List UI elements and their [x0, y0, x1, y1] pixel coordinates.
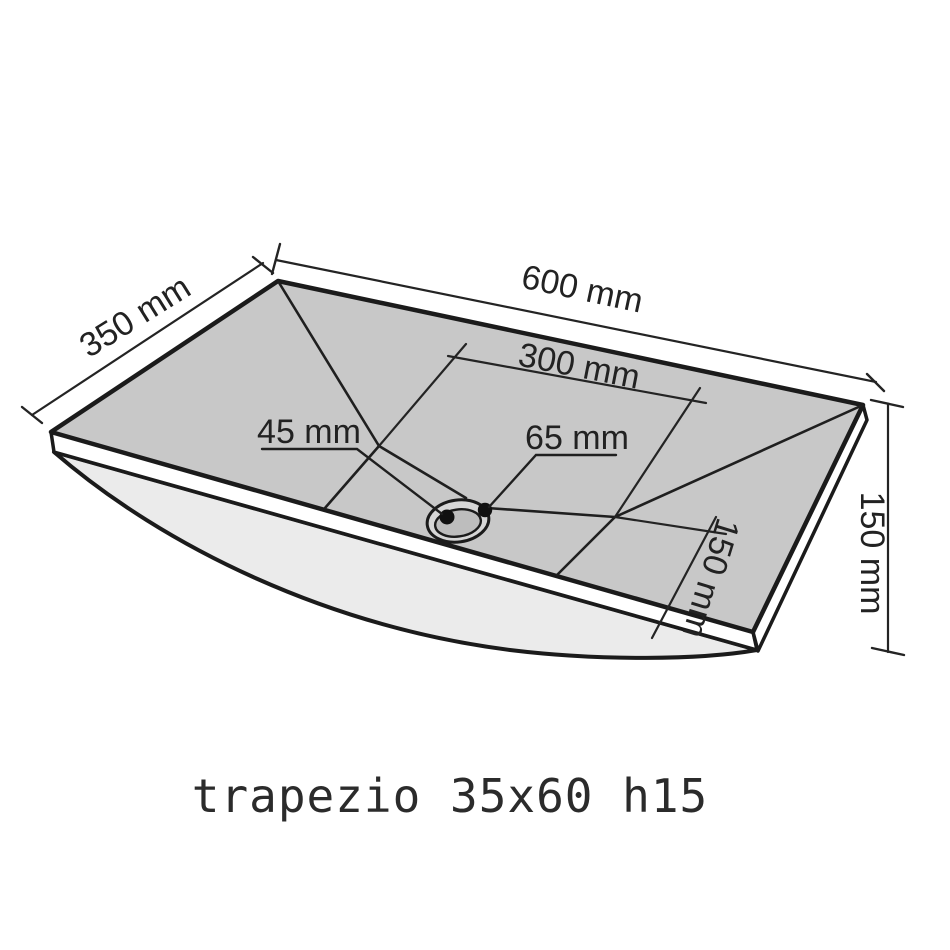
drawing-caption: trapezio 35x60 h15 [192, 769, 709, 823]
drain-hole-marker-dot [440, 510, 455, 525]
dimension-tick-350-end [253, 257, 273, 273]
dimension-150-height: 150 mm [853, 400, 904, 655]
dimension-label-150-height: 150 mm [853, 492, 891, 615]
dimension-label-600: 600 mm [518, 258, 646, 321]
basin-technical-drawing: 350 mm 600 mm 300 mm 45 mm 65 mm [0, 0, 950, 950]
technical-drawing-page: 350 mm 600 mm 300 mm 45 mm 65 mm [0, 0, 950, 950]
dimension-label-65: 65 mm [525, 419, 629, 457]
dimension-tick-600-end [867, 374, 884, 391]
dimension-label-45: 45 mm [257, 413, 361, 451]
dimension-tick-600-start [272, 244, 280, 274]
